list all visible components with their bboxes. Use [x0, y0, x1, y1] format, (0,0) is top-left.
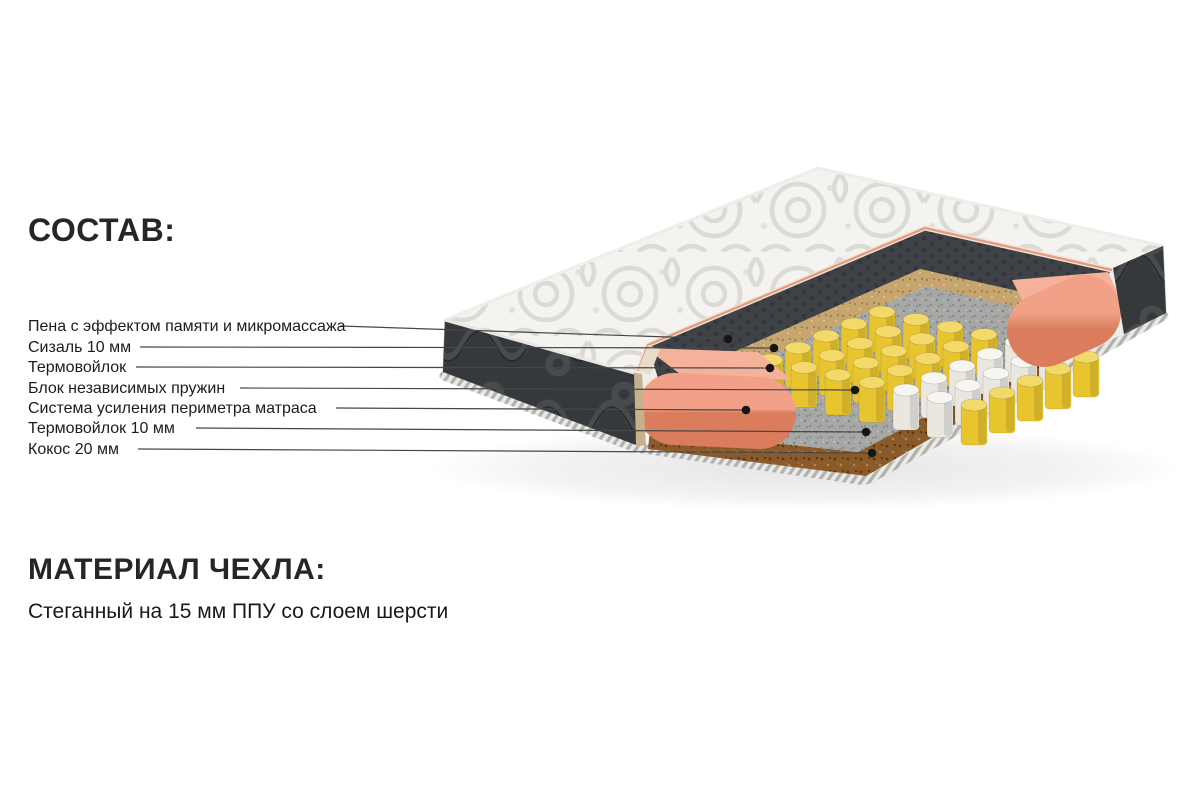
- composition-title: СОСТАВ:: [28, 212, 175, 249]
- spring-coil-top: [859, 377, 885, 389]
- spring-coil-top: [847, 338, 873, 350]
- spring-coil-top: [943, 341, 969, 353]
- spring-coil-top: [977, 348, 1003, 360]
- spring-coil-shade: [808, 371, 816, 407]
- spring-coil-top: [949, 360, 975, 372]
- spring-coil-top: [893, 384, 919, 396]
- leader-dot-felt: [766, 364, 775, 373]
- spring-coil-top: [955, 380, 981, 392]
- spring-coil-top: [875, 326, 901, 338]
- spring-coil-shade: [1034, 384, 1042, 420]
- spring-coil-shade: [842, 378, 850, 414]
- spring-coil-top: [937, 321, 963, 333]
- label-felt: Термовойлок: [28, 358, 126, 377]
- spring-coil-top: [819, 350, 845, 362]
- label-felt-10: Термовойлок 10 мм: [28, 419, 175, 438]
- spring-coil-top: [813, 330, 839, 342]
- cover-material-description: Стеганный на 15 мм ППУ со слоем шерсти: [28, 600, 448, 624]
- spring-coil-top: [853, 357, 879, 369]
- spring-coil-shade: [910, 393, 918, 429]
- spring-coil-top: [915, 353, 941, 365]
- mattress-infographic: СОСТАВ: Пена с эффектом памяти и микрома…: [0, 0, 1191, 794]
- spring-coil-top: [909, 333, 935, 345]
- leader-dot-coconut: [868, 449, 877, 458]
- spring-coil-top: [903, 314, 929, 326]
- cover-material-title: МАТЕРИАЛ ЧЕХЛА:: [28, 553, 326, 587]
- spring-coil-shade: [944, 401, 952, 437]
- spring-coil-top: [825, 369, 851, 381]
- spring-coil-top: [983, 368, 1009, 380]
- label-memory-foam: Пена с эффектом памяти и микромассажа: [28, 317, 346, 336]
- spring-coil-top: [971, 329, 997, 341]
- label-spring-block: Блок независимых пружин: [28, 379, 225, 398]
- spring-coil-top: [921, 372, 947, 384]
- spring-coil-shade: [1090, 360, 1098, 396]
- leader-dot-spring-block: [851, 386, 860, 395]
- spring-coil-top: [881, 345, 907, 357]
- leader-dot-perimeter-frame: [742, 406, 751, 415]
- spring-coil-top: [791, 362, 817, 374]
- spring-coil-top: [887, 365, 913, 377]
- spring-coil-shade: [978, 408, 986, 444]
- spring-coil-top: [927, 392, 953, 404]
- spring-coil-shade: [1062, 372, 1070, 408]
- spring-coil-top: [961, 399, 987, 411]
- leader-dot-felt-lower: [862, 428, 871, 437]
- spring-coil-shade: [876, 386, 884, 422]
- spring-coil-top: [1017, 375, 1043, 387]
- spring-coil-shade: [1006, 396, 1014, 432]
- spring-coil-top: [989, 387, 1015, 399]
- leader-dot-memory-foam: [724, 335, 733, 344]
- label-coconut: Кокос 20 мм: [28, 440, 119, 459]
- leader-dot-sisal: [770, 344, 779, 353]
- spring-coil-top: [785, 342, 811, 354]
- label-sisal: Сизаль 10 мм: [28, 338, 131, 357]
- spring-coil-top: [841, 318, 867, 330]
- spring-coil-top: [869, 306, 895, 318]
- label-perimeter-system: Система усиления периметра матраса: [28, 399, 317, 418]
